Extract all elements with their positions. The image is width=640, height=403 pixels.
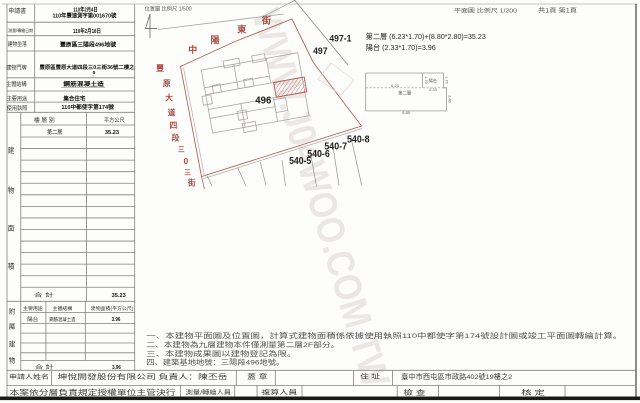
svg-text:110年豐速測字第001670號: 110年豐速測字第001670號 [53,12,117,20]
svg-text:主體結構: 主體結構 [53,305,73,312]
svg-text:第二層 (6.23*1.70)+(8.80*2.80)=35: 第二層 (6.23*1.70)+(8.80*2.80)=35.23 [366,31,486,41]
svg-text:原: 原 [163,79,171,88]
svg-text:共1頁 第1頁: 共1頁 第1頁 [538,7,577,15]
svg-text:集合住宅: 集合住宅 [62,94,85,102]
svg-text:四、建築基地地號：三陽段496地號。: 四、建築基地地號：三陽段496地號。 [146,358,284,367]
svg-text:497-1: 497-1 [329,33,352,44]
svg-text:1.70: 1.70 [445,76,449,83]
svg-text:陽台: 陽台 [27,315,38,323]
svg-text:合 計: 合 計 [35,363,54,371]
svg-text:道: 道 [168,107,176,117]
svg-text:8.80: 8.80 [402,110,411,115]
svg-text:積: 積 [8,262,15,271]
svg-text:住 址: 住 址 [360,372,381,381]
svg-text:附: 附 [9,306,16,315]
svg-text:三: 三 [184,169,191,177]
svg-text:樓 層 別: 樓 層 別 [34,116,55,124]
svg-text:↑: ↑ [92,74,95,80]
svg-text:二、本建物為九層建物本件僅測量第二層2F部分。: 二、本建物為九層建物本件僅測量第二層2F部分。 [146,340,339,349]
svg-text:陽台 (2.33*1.70)=3.96: 陽台 (2.33*1.70)=3.96 [366,42,436,52]
svg-text:蓋 章: 蓋 章 [247,372,268,381]
svg-text:坤悅開發股份有限公司 負責人：陳丕岳: 坤悅開發股份有限公司 負責人：陳丕岳 [58,372,228,381]
svg-text:位置圖 比例尺 1/500: 位置圖 比例尺 1/500 [145,5,192,13]
svg-text:第二層: 第二層 [47,128,62,136]
svg-text:測量/轉繪人員: 測量/轉繪人員 [186,389,231,397]
svg-text:平面圖 比例尺 1/200: 平面圖 比例尺 1/200 [454,7,517,15]
svg-text:屬: 屬 [9,322,16,330]
svg-text:建: 建 [9,339,16,348]
svg-text:物: 物 [9,355,16,364]
svg-text:東: 東 [237,24,246,35]
svg-text:一、本建物平面圖及位置圖，計算式建物面積係依據使用執照110: 一、本建物平面圖及位置圖，計算式建物面積係依據使用執照110中都使字第174號設… [146,331,622,340]
svg-text:主要用途: 主要用途 [7,94,28,102]
svg-text:四: 四 [170,121,178,130]
svg-text:陽台: 陽台 [429,77,437,84]
svg-text:2.33: 2.33 [429,87,438,92]
svg-text:1.70: 1.70 [424,76,428,83]
svg-text:110年2月4日: 110年2月4日 [73,5,97,13]
svg-text:497: 497 [313,46,328,57]
svg-text:街: 街 [187,178,196,188]
svg-text:使用執照: 使用執照 [7,104,28,112]
svg-text:3.96: 3.96 [112,365,121,371]
svg-text:三: 三 [178,145,185,153]
svg-text:平方公尺: 平方公尺 [104,116,125,124]
svg-text:110中都使字第174號: 110中都使字第174號 [61,103,114,111]
svg-text:建物坐落: 建物坐落 [8,40,27,48]
svg-text:第二層: 第二層 [398,89,411,96]
svg-text:0: 0 [184,156,189,166]
svg-text:臺中市西屯區市政路402號19樓之2: 臺中市西屯區市政路402號19樓之2 [401,372,512,381]
svg-text:檢 查: 檢 查 [403,388,426,397]
svg-text:建物門牌: 建物門牌 [6,64,27,72]
svg-text:三、本建物成果圖以建物登記為限。: 三、本建物成果圖以建物登記為限。 [146,349,296,358]
svg-text:35.23: 35.23 [112,293,127,299]
svg-text:建: 建 [8,146,15,155]
svg-text:街: 街 [261,15,271,26]
svg-text:中: 中 [188,44,197,55]
svg-text:本案依分層負責規定授權單位主管決行: 本案依分層負責規定授權單位主管決行 [10,388,176,397]
svg-text:540-5: 540-5 [289,156,311,167]
svg-text:主要用途: 主要用途 [23,305,43,312]
svg-text:面: 面 [8,225,15,233]
svg-text:110年2月18日: 110年2月18日 [73,27,101,35]
svg-text:物: 物 [8,186,15,195]
svg-text:6.23: 6.23 [391,83,400,88]
svg-text:複算人員: 複算人員 [261,389,297,397]
svg-text:豐原區豐原大道四段三0三街36號二樓之: 豐原區豐原大道四段三0三街36號二樓之 [40,63,136,71]
svg-text:豐: 豐 [156,63,164,73]
svg-text:段: 段 [172,133,180,143]
svg-text:540-8: 540-8 [347,135,370,146]
svg-text:3.96: 3.96 [112,317,121,323]
svg-text:主體結構: 主體結構 [6,80,27,88]
svg-text:陽: 陽 [210,35,219,45]
svg-text:建物面積(平方公尺): 建物面積(平方公尺) [91,305,134,312]
svg-text:35.23: 35.23 [105,130,120,136]
svg-text:鋼筋混凝土造: 鋼筋混凝土造 [62,80,104,88]
svg-text:申請人姓名: 申請人姓名 [9,373,49,381]
svg-text:測量/轉繪日期: 測量/轉繪日期 [8,27,33,34]
svg-text:核 定: 核 定 [521,388,545,397]
svg-text:合 計: 合 計 [34,291,54,299]
svg-text:496: 496 [255,95,271,107]
svg-text:鋼筋混凝土造: 鋼筋混凝土造 [49,316,75,323]
svg-text:豐原區三陽段496地號: 豐原區三陽段496地號 [60,40,116,48]
svg-text:申請書: 申請書 [8,7,26,15]
svg-text:大: 大 [165,93,173,103]
svg-text:2.80: 2.80 [448,95,452,102]
